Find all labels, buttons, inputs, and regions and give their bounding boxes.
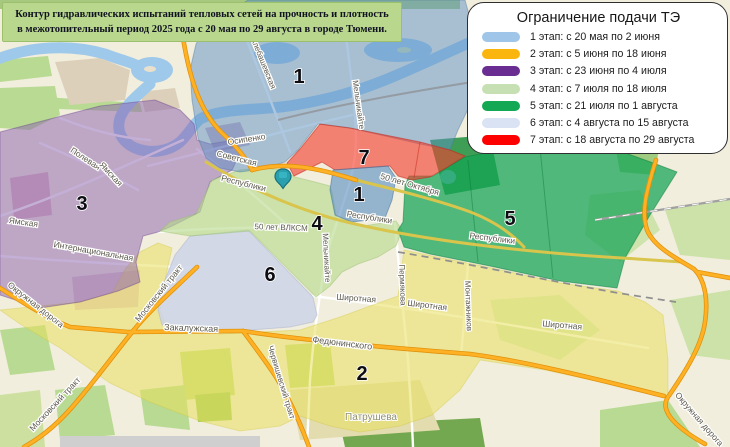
legend-item: 2 этап: с 5 июня по 18 июня — [482, 48, 715, 60]
zone-num-label: 3 — [76, 193, 87, 215]
street-label: Закалужская — [164, 322, 218, 334]
legend-rows: 1 этап: с 20 мая по 2 июня2 этап: с 5 ию… — [482, 31, 715, 146]
zone-num-label: 6 — [264, 264, 275, 286]
street-label: Монтажников — [463, 281, 474, 331]
legend-swatch — [482, 66, 520, 76]
legend-item-label: 6 этап: с 4 августа по 15 августа — [530, 117, 689, 129]
legend-item-label: 5 этап: с 21 июля по 1 августа — [530, 100, 678, 112]
legend-item-label: 4 этап: с 7 июля по 18 июля — [530, 83, 667, 95]
zone-num-label: 4 — [311, 213, 323, 235]
zone-num-label: 2 — [356, 363, 367, 385]
legend-swatch — [482, 101, 520, 111]
map-title-line2: в межотопительный период 2025 года с 20 … — [9, 22, 395, 37]
place-label: Патрушева — [345, 412, 397, 423]
zone-num-label: 1 — [293, 66, 304, 88]
legend-item-label: 3 этап: с 23 июня по 4 июля — [530, 65, 667, 77]
map-screenshot: АлебашевскаяМельникайтеОсипенкоСоветская… — [0, 0, 730, 447]
zone-num-label: 1 — [353, 184, 364, 206]
legend-item: 6 этап: с 4 августа по 15 августа — [482, 117, 715, 129]
legend-swatch — [482, 84, 520, 94]
place-labels: Патрушева — [345, 412, 397, 423]
legend-item: 7 этап: с 18 августа по 29 августа — [482, 134, 715, 146]
street-label: Пермякова — [397, 264, 407, 306]
legend-swatch — [482, 135, 520, 145]
map-title-line1: Контур гидравлических испытаний тепловых… — [9, 7, 395, 22]
zone-num-label: 7 — [358, 147, 369, 169]
legend-panel: Ограничение подачи ТЭ 1 этап: с 20 мая п… — [467, 2, 728, 154]
legend-swatch — [482, 49, 520, 59]
legend-item: 5 этап: с 21 июля по 1 августа — [482, 100, 715, 112]
legend-item: 3 этап: с 23 июня по 4 июля — [482, 65, 715, 77]
legend-item-label: 1 этап: с 20 мая по 2 июня — [530, 31, 660, 43]
street-label: 50 лет ВЛКСМ — [254, 222, 308, 233]
legend-item-label: 7 этап: с 18 августа по 29 августа — [530, 134, 694, 146]
legend-swatch — [482, 32, 520, 42]
legend-item: 4 этап: с 7 июля по 18 июля — [482, 83, 715, 95]
legend-item: 1 этап: с 20 мая по 2 июня — [482, 31, 715, 43]
legend-swatch — [482, 118, 520, 128]
map-title: Контур гидравлических испытаний тепловых… — [2, 2, 402, 42]
legend-item-label: 2 этап: с 5 июня по 18 июня — [530, 48, 666, 60]
legend-title: Ограничение подачи ТЭ — [482, 10, 715, 26]
zone-num-label: 5 — [504, 208, 515, 230]
